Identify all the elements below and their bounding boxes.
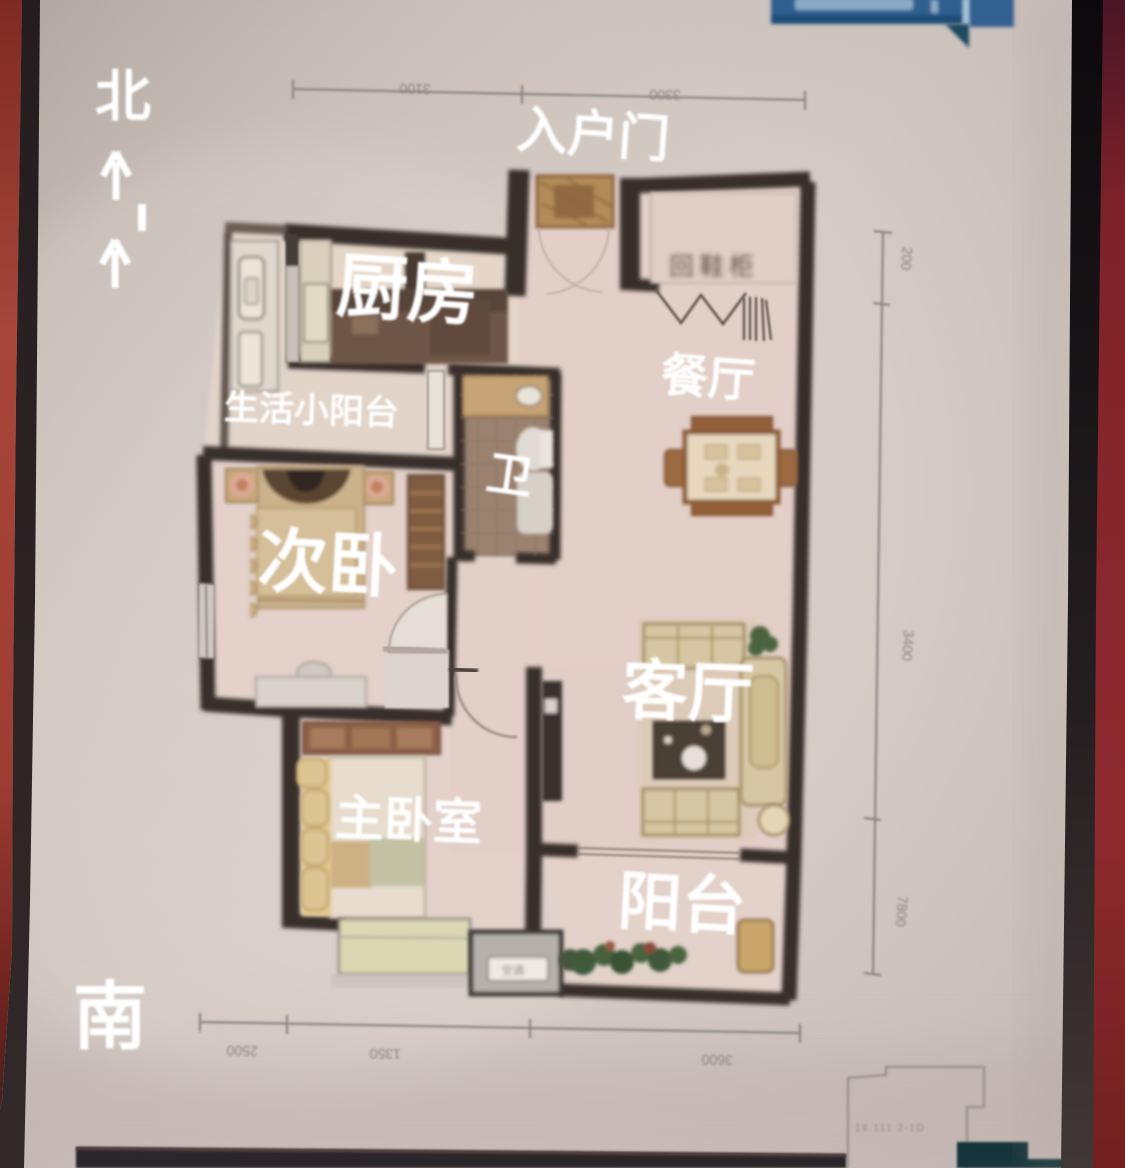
svg-text:18.111 2-1D: 18.111 2-1D	[855, 1123, 925, 1134]
svg-text:回鞋柜: 回鞋柜	[669, 253, 759, 281]
svg-text:3600: 3600	[701, 1052, 733, 1069]
svg-text:3100: 3100	[399, 81, 431, 98]
svg-text:厨房: 厨房	[334, 247, 481, 336]
svg-text:北: 北	[95, 65, 151, 128]
svg-text:1350: 1350	[369, 1046, 401, 1063]
svg-text:3300: 3300	[649, 87, 681, 104]
svg-text:空调: 空调	[502, 963, 524, 977]
svg-text:次卧: 次卧	[256, 521, 400, 606]
svg-text:生活小阳台: 生活小阳台	[223, 388, 399, 433]
svg-text:客厅: 客厅	[621, 653, 756, 732]
svg-text:卫: 卫	[483, 446, 536, 504]
svg-text:入户门: 入户门	[515, 101, 672, 169]
svg-text:阳台: 阳台	[616, 865, 748, 944]
svg-text:南: 南	[73, 975, 147, 1058]
svg-text:主卧室: 主卧室	[334, 792, 483, 851]
svg-text:餐厅: 餐厅	[659, 348, 756, 407]
svg-text:2500: 2500	[226, 1043, 258, 1060]
svg-text:3400: 3400	[899, 629, 917, 661]
svg-text:7800: 7800	[893, 895, 911, 927]
svg-text:200: 200	[898, 246, 916, 271]
